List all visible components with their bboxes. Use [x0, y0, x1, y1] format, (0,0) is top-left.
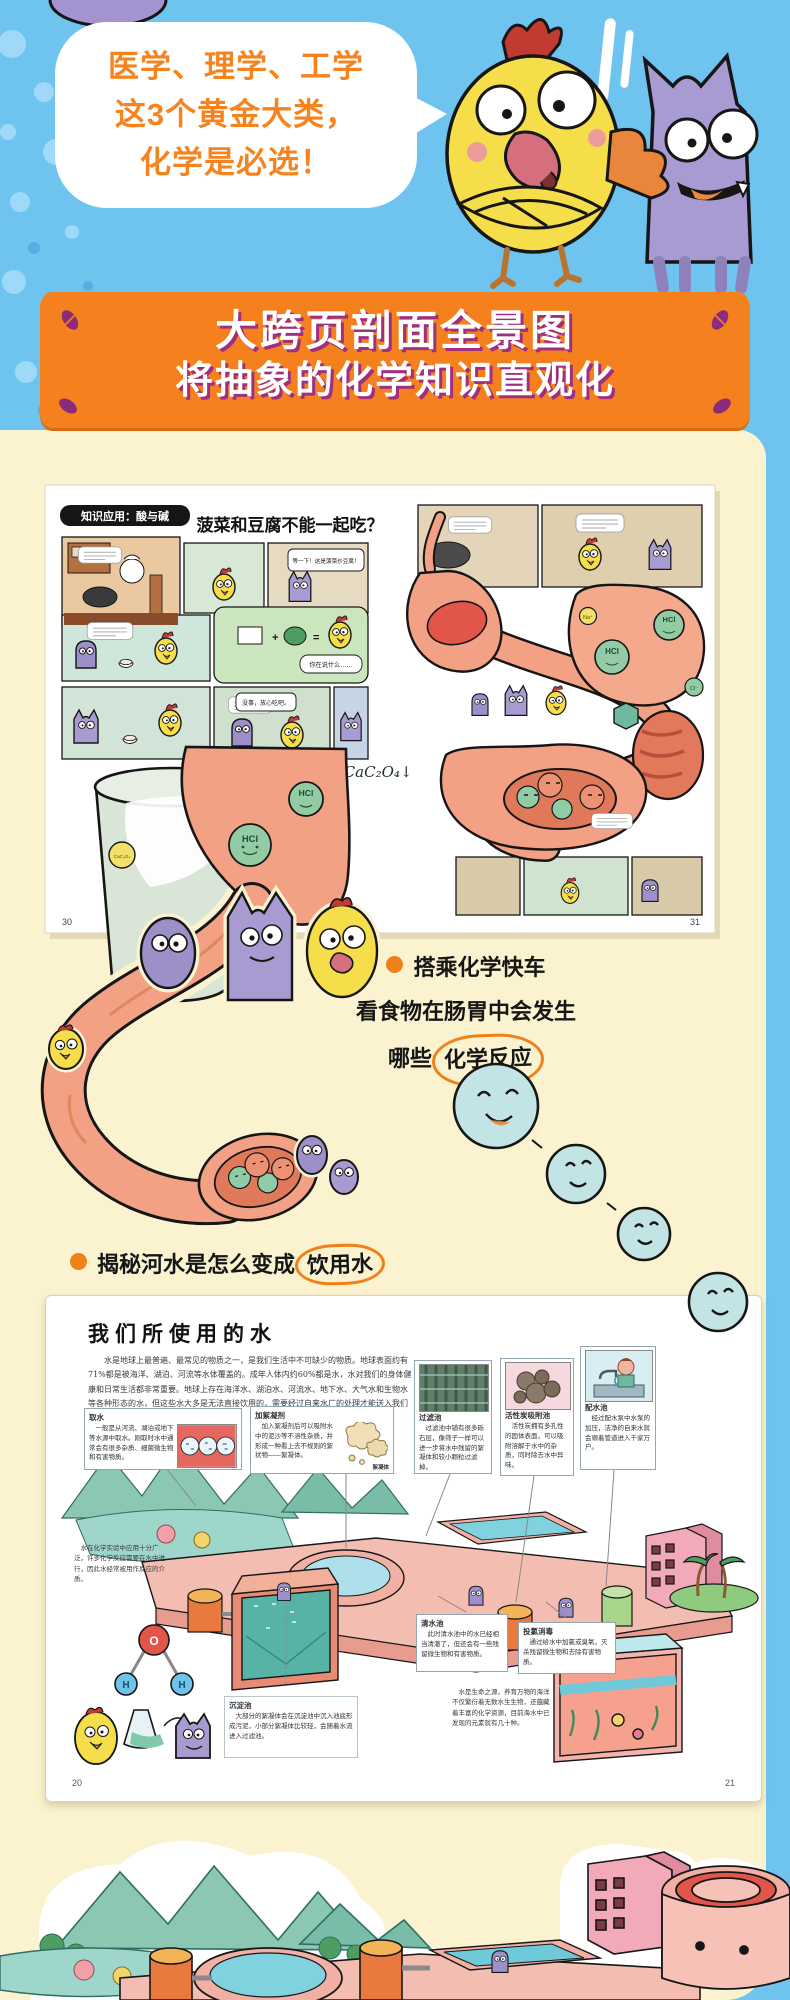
- bullet-dot-icon: [386, 956, 403, 973]
- floc-illustration: [338, 1422, 388, 1468]
- coffee-bean-icon: [56, 394, 80, 418]
- filter-illustration: [419, 1364, 489, 1412]
- info-box-carbon: 活性炭吸附池 活性炭拥有多孔性的固体表面，可以吸附溶解于水中的杂质，同时除去水中…: [500, 1358, 574, 1476]
- page: 医学、理学、工学 这3个黄金大类， 化学是必选！: [0, 0, 790, 2000]
- floc-label: 絮凝体: [372, 1463, 389, 1471]
- coffee-bean-icon: [708, 308, 732, 332]
- mascot-trio-art: [75, 1707, 210, 1764]
- info-box-clear-water: 清水池 此时清水池中的水已经相当清澈了，但还会有一些残留微生物和有害物质。: [416, 1614, 508, 1672]
- svg-text:等一下！这是菠菜炒豆腐！: 等一下！这是菠菜炒豆腐！: [292, 557, 359, 565]
- speech-bubble: 没事，放心吃吧。: [236, 693, 296, 711]
- svg-text:CaC₂O₄: CaC₂O₄: [114, 854, 131, 859]
- side-note: 水在化学实验中应用十分广泛，许多化学反应需要在水中进行，因此水经常被用作反应的介…: [74, 1544, 170, 1586]
- bottom-panorama-illustration: [0, 1828, 790, 2000]
- page-title: 我们所使用的水: [88, 1318, 277, 1348]
- bullet-dot-icon: [70, 1253, 87, 1270]
- info-box-distribution: 配水池 经过配水泵中水泵的加压，洁净的自来水就会顺着管道进入千家万户。: [580, 1346, 656, 1470]
- comic-title: 菠菜和豆腐不能一起吃？: [197, 515, 384, 535]
- stomach-spillout-art: CaC₂O₄ HCl HCl: [49, 747, 377, 1232]
- raw-water-illustration: [177, 1424, 237, 1468]
- hero-speech-bubble: 医学、理学、工学 这3个黄金大类， 化学是必选！: [55, 22, 417, 208]
- sea-note: 水是生命之源，养育万物的海洋不仅繁衍着无数水生生物，还蕴藏着丰富的化学资源，目前…: [452, 1688, 550, 1730]
- caption-line1: 搭乘化学快车: [413, 955, 545, 980]
- banner-title-line2: 将抽象的化学知识直观化: [40, 356, 750, 406]
- svg-text:HCl: HCl: [299, 788, 314, 798]
- bullet-circled-term: 饮用水: [294, 1242, 385, 1286]
- carbon-illustration: [505, 1362, 571, 1410]
- hero-line-3: 化学是必选！: [140, 139, 332, 187]
- hero-line-2: 这3个黄金大类，: [115, 91, 357, 139]
- water-bubble-characters: [430, 1040, 790, 1360]
- page-number-right: 31: [690, 917, 700, 927]
- info-box-intake: 取水 一般是从河流、湖泊或地下等水源中取水。刚取时水中通常会有很多杂质、细菌微生…: [84, 1408, 242, 1470]
- svg-text:=: =: [313, 632, 319, 644]
- svg-text:H: H: [122, 1680, 129, 1691]
- svg-text:O: O: [149, 1634, 158, 1648]
- yellow-bird-character: [447, 19, 668, 286]
- bullet-prefix: 揭秘河水是怎么变成: [97, 1252, 295, 1277]
- knowledge-tag: 知识应用：酸与碱: [80, 509, 169, 523]
- speech-bubble: 你在说什么……: [300, 655, 362, 673]
- headline-banner: 大跨页剖面全景图 将抽象的化学知识直观化: [40, 292, 750, 428]
- mascot-characters: [415, 12, 790, 294]
- info-box-filter: 过滤池 过滤池中铺有很多砾石层，像筛子一样可以进一步将水中残留的絮凝体和较小颗粒…: [414, 1360, 492, 1474]
- coffee-bean-icon: [710, 394, 734, 418]
- page-number-right: 21: [725, 1778, 735, 1788]
- svg-text:Cl⁻: Cl⁻: [690, 686, 698, 692]
- info-box-sedimentation: 沉淀池 大部分的絮凝体会在沉淀池中沉入池底形成污泥，小部分絮凝体比较轻，会随着水…: [224, 1696, 358, 1758]
- caption-line3-prefix: 哪些: [388, 1046, 432, 1071]
- banner-title-line1: 大跨页剖面全景图: [40, 306, 750, 356]
- svg-text:H: H: [178, 1680, 185, 1691]
- speech-bubble: 等一下！这是菠菜炒豆腐！: [288, 549, 364, 571]
- water-molecule-art: O H H: [115, 1625, 193, 1695]
- page-number-left: 30: [62, 917, 72, 927]
- svg-text:HCl: HCl: [663, 615, 676, 624]
- svg-text:HCl: HCl: [605, 647, 619, 656]
- hero-line-1: 医学、理学、工学: [108, 43, 364, 91]
- info-box-chlorination: 投氯消毒 通过给水中加氯或臭氧，灭杀残留微生物和去除有害物质。: [518, 1622, 616, 1674]
- svg-text:你在说什么……: 你在说什么……: [309, 661, 352, 669]
- book-page-water: O H H: [45, 1295, 762, 1802]
- page-number-left: 20: [72, 1778, 82, 1788]
- info-box-flocculant: 加絮凝剂 加入絮凝剂后可以吸附水中的泥沙等不溶性杂质，并形成一种看上去不规则的絮…: [250, 1406, 394, 1474]
- svg-text:HCl: HCl: [242, 834, 258, 845]
- coffee-bean-icon: [58, 308, 82, 332]
- svg-text:Na⁺: Na⁺: [583, 614, 593, 621]
- svg-text:+: +: [272, 632, 278, 644]
- svg-text:没事，放心吃吧。: 没事，放心吃吧。: [242, 699, 290, 707]
- caption-line2: 看食物在肠胃中会发生: [332, 990, 600, 1034]
